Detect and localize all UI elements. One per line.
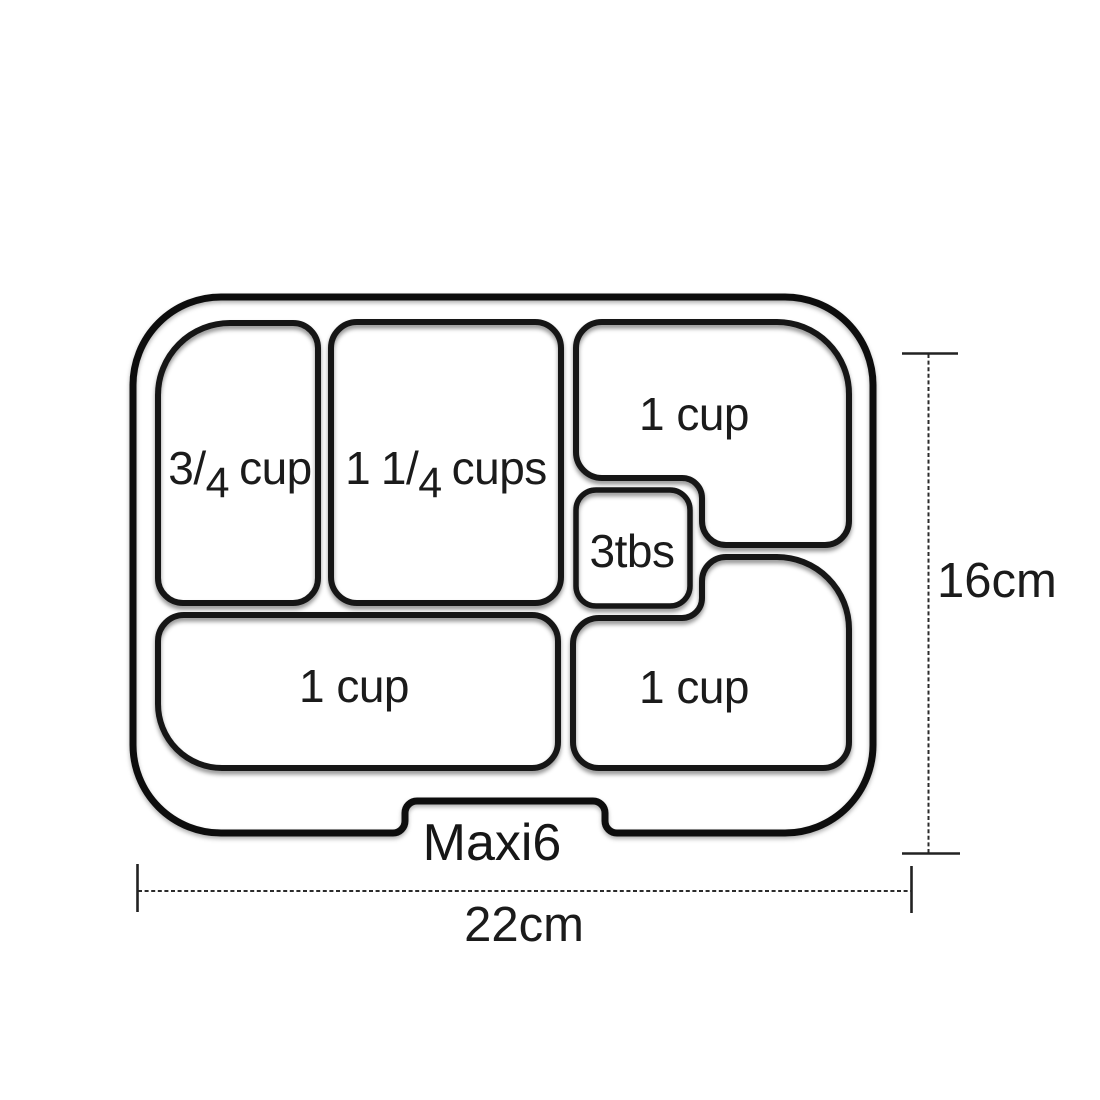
compartment-top-left-label: 3/4cup: [168, 442, 311, 507]
width-dimension-label: 22cm: [464, 898, 584, 952]
compartment-top-middle-label: 11/4cups: [345, 442, 547, 507]
model-label: Maxi6: [423, 814, 562, 872]
height-dimension-label: 16cm: [937, 554, 1057, 608]
diagram-canvas: 3/4cup 11/4cups 1 cup 3tbs 1 cup 1 cup M…: [0, 0, 1100, 1100]
munchbox-tray-diagram: 3/4cup 11/4cups 1 cup 3tbs 1 cup 1 cup M…: [0, 0, 1100, 1100]
width-dimension: 22cm: [138, 864, 912, 952]
height-dimension: 16cm: [902, 354, 1057, 854]
compartment-top-right-label: 1 cup: [639, 388, 749, 440]
compartment-bottom-left-label: 1 cup: [299, 660, 409, 712]
tray-outline: [133, 297, 873, 833]
compartment-bottom-right-label: 1 cup: [639, 661, 749, 713]
compartment-3tbs-label: 3tbs: [590, 525, 675, 577]
